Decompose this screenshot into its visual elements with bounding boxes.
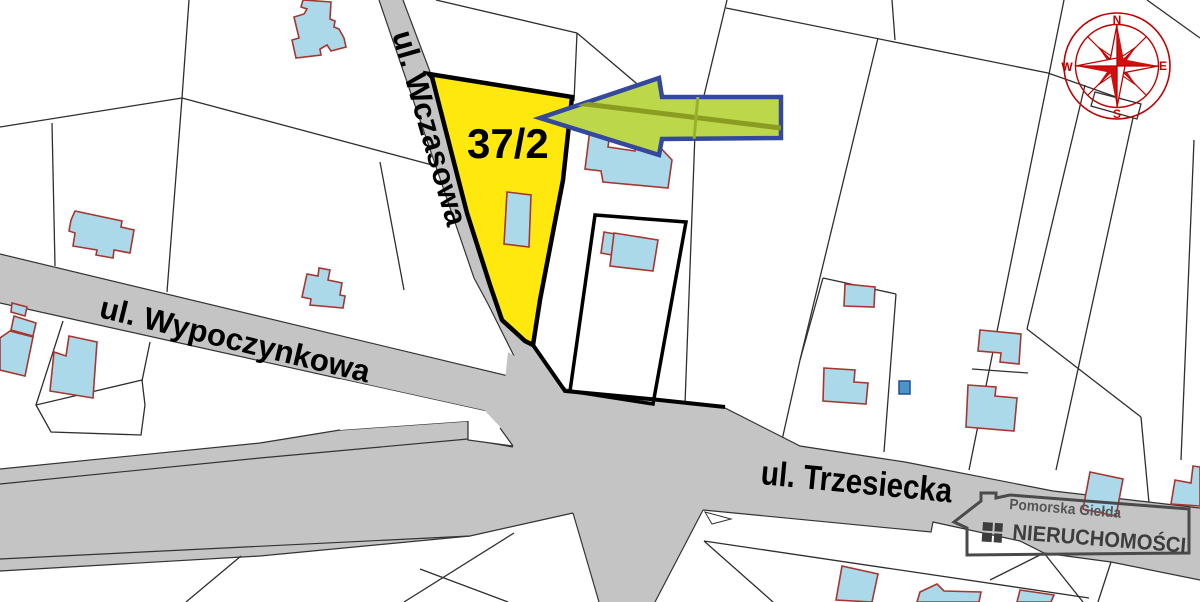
svg-text:S: S xyxy=(1113,107,1121,121)
svg-text:N: N xyxy=(1113,13,1122,27)
svg-text:W: W xyxy=(1061,60,1073,74)
svg-text:E: E xyxy=(1159,59,1167,73)
svg-text:37/2: 37/2 xyxy=(467,120,549,167)
